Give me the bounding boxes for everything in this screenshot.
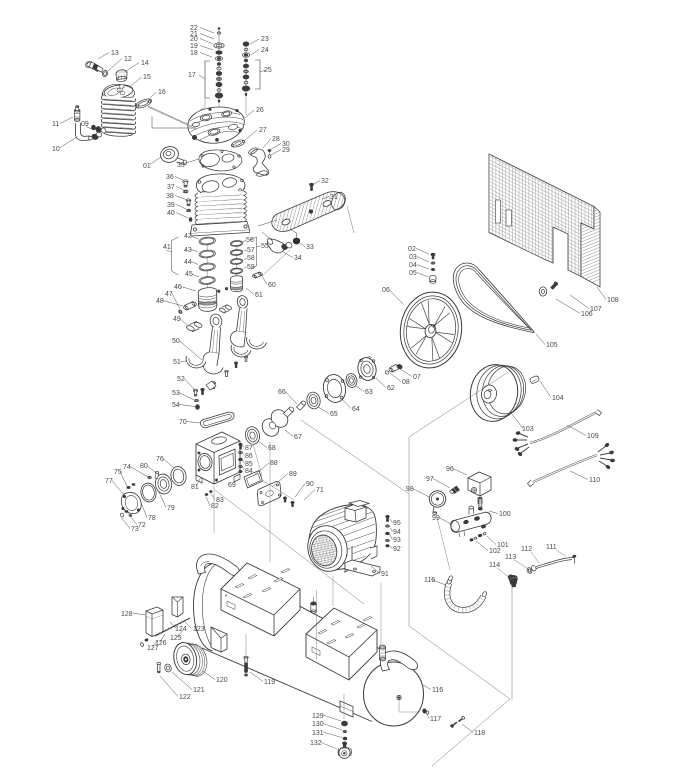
svg-text:81: 81 bbox=[191, 484, 199, 491]
svg-text:55: 55 bbox=[261, 243, 269, 250]
svg-text:66: 66 bbox=[278, 389, 286, 396]
svg-text:60: 60 bbox=[268, 282, 276, 289]
svg-text:89: 89 bbox=[289, 471, 297, 478]
svg-text:100: 100 bbox=[499, 511, 511, 518]
svg-text:23: 23 bbox=[261, 36, 269, 43]
svg-text:103: 103 bbox=[522, 426, 534, 433]
svg-text:91: 91 bbox=[381, 571, 389, 578]
svg-text:67: 67 bbox=[294, 434, 302, 441]
svg-text:43: 43 bbox=[184, 247, 192, 254]
svg-text:53: 53 bbox=[172, 390, 180, 397]
svg-text:35: 35 bbox=[177, 162, 185, 169]
svg-text:104: 104 bbox=[552, 395, 564, 402]
svg-text:85: 85 bbox=[245, 461, 253, 468]
svg-text:58: 58 bbox=[247, 255, 255, 262]
svg-text:37: 37 bbox=[167, 184, 175, 191]
svg-text:73: 73 bbox=[131, 526, 139, 533]
svg-text:18: 18 bbox=[190, 50, 198, 57]
svg-text:132: 132 bbox=[310, 740, 322, 747]
svg-text:34: 34 bbox=[294, 255, 302, 262]
svg-text:69: 69 bbox=[228, 482, 236, 489]
svg-text:63: 63 bbox=[365, 389, 373, 396]
svg-text:20: 20 bbox=[190, 36, 198, 43]
svg-text:15: 15 bbox=[143, 74, 151, 81]
svg-text:94: 94 bbox=[393, 529, 401, 536]
svg-text:120: 120 bbox=[216, 677, 228, 684]
svg-text:86: 86 bbox=[245, 453, 253, 460]
svg-text:61: 61 bbox=[255, 292, 263, 299]
svg-text:17: 17 bbox=[188, 72, 196, 79]
svg-text:42: 42 bbox=[184, 233, 192, 240]
svg-text:108: 108 bbox=[607, 297, 619, 304]
svg-text:106: 106 bbox=[581, 311, 593, 318]
svg-text:52: 52 bbox=[177, 376, 185, 383]
svg-text:121: 121 bbox=[193, 687, 205, 694]
svg-text:45: 45 bbox=[185, 271, 193, 278]
svg-text:70: 70 bbox=[179, 419, 187, 426]
svg-text:90: 90 bbox=[306, 481, 314, 488]
svg-text:32: 32 bbox=[321, 178, 329, 185]
svg-text:93: 93 bbox=[393, 537, 401, 544]
svg-text:123: 123 bbox=[193, 626, 205, 633]
svg-text:111: 111 bbox=[546, 544, 557, 551]
svg-text:38: 38 bbox=[166, 193, 174, 200]
svg-text:64: 64 bbox=[352, 406, 360, 413]
svg-text:124: 124 bbox=[175, 626, 187, 633]
svg-text:48: 48 bbox=[156, 298, 164, 305]
svg-text:51: 51 bbox=[173, 359, 181, 366]
svg-text:99: 99 bbox=[432, 515, 440, 522]
svg-text:128: 128 bbox=[121, 611, 133, 618]
svg-text:112: 112 bbox=[521, 546, 532, 553]
svg-text:28: 28 bbox=[272, 136, 280, 143]
svg-text:116: 116 bbox=[432, 687, 443, 694]
svg-text:27: 27 bbox=[259, 127, 267, 134]
svg-text:119: 119 bbox=[264, 679, 275, 686]
svg-text:50: 50 bbox=[172, 338, 180, 345]
svg-text:49: 49 bbox=[173, 316, 181, 323]
svg-text:117: 117 bbox=[430, 716, 441, 723]
svg-text:105: 105 bbox=[546, 342, 558, 349]
svg-text:46: 46 bbox=[174, 284, 182, 291]
svg-text:01: 01 bbox=[143, 163, 151, 170]
svg-text:07: 07 bbox=[413, 374, 421, 381]
svg-text:05: 05 bbox=[409, 270, 417, 277]
svg-text:19: 19 bbox=[190, 43, 198, 50]
svg-text:40: 40 bbox=[167, 210, 175, 217]
svg-text:102: 102 bbox=[489, 548, 501, 555]
svg-text:06: 06 bbox=[382, 287, 390, 294]
svg-text:97: 97 bbox=[426, 476, 434, 483]
svg-text:82: 82 bbox=[211, 503, 219, 510]
svg-text:31: 31 bbox=[330, 194, 338, 201]
svg-text:12: 12 bbox=[124, 56, 132, 63]
svg-text:74: 74 bbox=[123, 464, 131, 471]
svg-text:47: 47 bbox=[165, 291, 173, 298]
svg-text:109: 109 bbox=[587, 433, 599, 440]
svg-text:95: 95 bbox=[393, 520, 401, 527]
svg-text:02: 02 bbox=[408, 246, 416, 253]
svg-text:131: 131 bbox=[312, 730, 324, 737]
svg-text:68: 68 bbox=[268, 445, 276, 452]
svg-text:88: 88 bbox=[270, 460, 278, 467]
svg-text:25: 25 bbox=[264, 67, 272, 74]
svg-text:78: 78 bbox=[148, 515, 156, 522]
svg-text:110: 110 bbox=[589, 477, 600, 484]
svg-text:129: 129 bbox=[312, 713, 324, 720]
svg-text:33: 33 bbox=[306, 244, 314, 251]
svg-text:54: 54 bbox=[172, 402, 180, 409]
svg-text:44: 44 bbox=[184, 259, 192, 266]
svg-text:80: 80 bbox=[140, 463, 148, 470]
svg-text:26: 26 bbox=[256, 107, 264, 114]
svg-text:71: 71 bbox=[316, 487, 324, 494]
svg-text:77: 77 bbox=[105, 478, 113, 485]
svg-text:114: 114 bbox=[489, 562, 500, 569]
svg-text:65: 65 bbox=[330, 411, 338, 418]
svg-text:57: 57 bbox=[247, 247, 255, 254]
svg-text:79: 79 bbox=[167, 505, 175, 512]
svg-text:118: 118 bbox=[474, 730, 485, 737]
svg-text:39: 39 bbox=[167, 202, 175, 209]
svg-text:87: 87 bbox=[245, 445, 253, 452]
svg-text:92: 92 bbox=[393, 546, 401, 553]
svg-text:11: 11 bbox=[52, 121, 59, 128]
svg-text:03: 03 bbox=[409, 254, 417, 261]
svg-text:16: 16 bbox=[158, 89, 166, 96]
svg-text:56: 56 bbox=[246, 237, 254, 244]
svg-text:62: 62 bbox=[387, 385, 395, 392]
svg-text:130: 130 bbox=[312, 721, 324, 728]
svg-text:04: 04 bbox=[409, 262, 417, 269]
svg-text:72: 72 bbox=[138, 522, 146, 529]
svg-text:29: 29 bbox=[282, 147, 290, 154]
svg-text:24: 24 bbox=[261, 47, 269, 54]
svg-text:76: 76 bbox=[156, 456, 164, 463]
svg-text:08: 08 bbox=[402, 379, 410, 386]
svg-text:10: 10 bbox=[52, 146, 60, 153]
svg-text:98: 98 bbox=[406, 486, 414, 493]
svg-text:14: 14 bbox=[141, 60, 149, 67]
svg-text:13: 13 bbox=[111, 50, 119, 57]
svg-text:125: 125 bbox=[170, 635, 182, 642]
svg-text:36: 36 bbox=[166, 174, 174, 181]
svg-text:96: 96 bbox=[446, 466, 454, 473]
svg-text:122: 122 bbox=[179, 694, 191, 701]
